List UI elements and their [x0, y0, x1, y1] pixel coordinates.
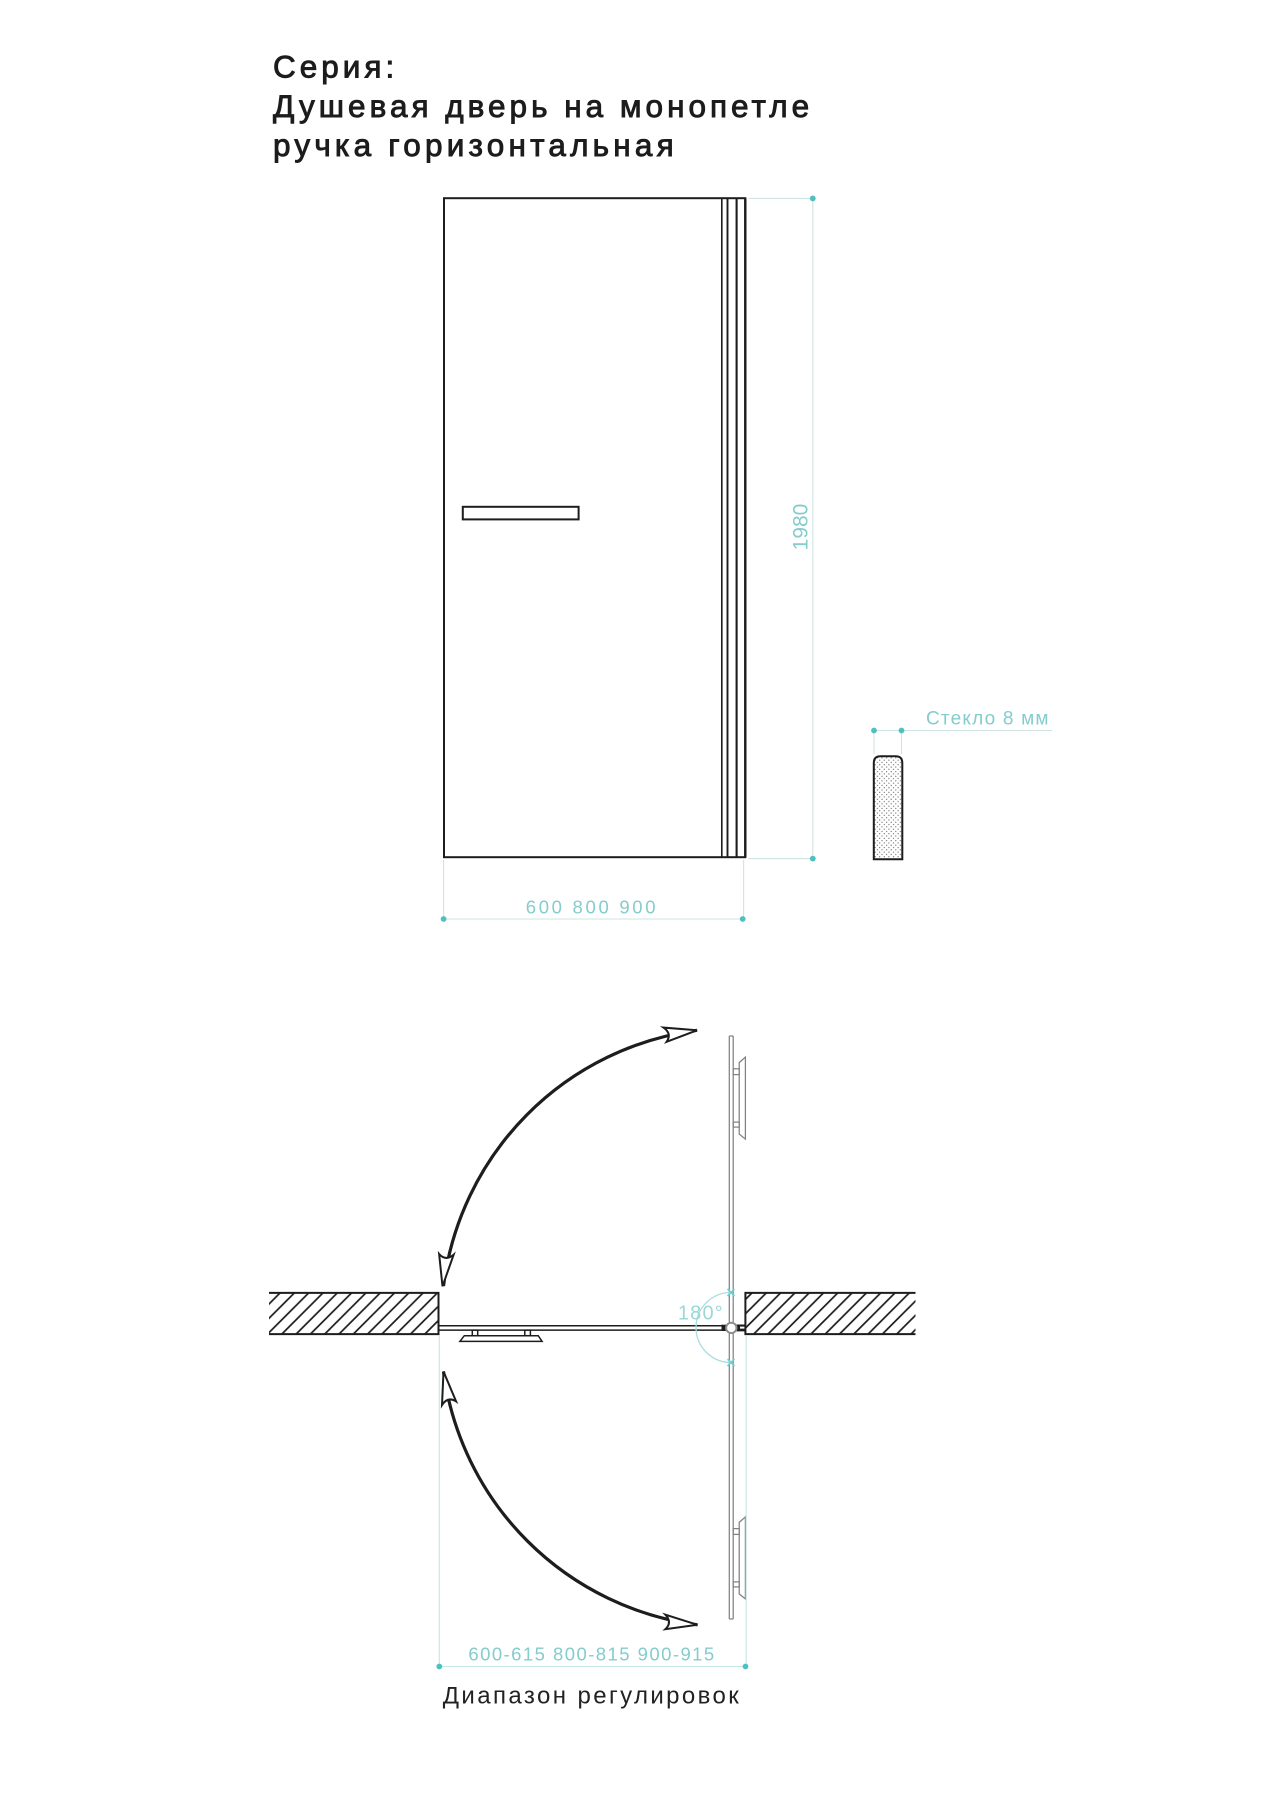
svg-text:Стекло 8 мм: Стекло 8 мм [926, 709, 1050, 730]
svg-text:Диапазон регулировок: Диапазон регулировок [443, 1682, 741, 1709]
svg-text:600 800 900: 600 800 900 [526, 897, 659, 918]
svg-text:Серия:: Серия: [273, 48, 398, 84]
svg-text:ручка горизонтальная: ручка горизонтальная [273, 127, 678, 163]
svg-text:600-615 800-815 900-915: 600-615 800-815 900-915 [468, 1644, 715, 1665]
svg-text:180°: 180° [678, 1303, 724, 1325]
svg-text:Душевая дверь на монопетле: Душевая дверь на монопетле [273, 88, 813, 124]
svg-text:1980: 1980 [790, 504, 813, 551]
